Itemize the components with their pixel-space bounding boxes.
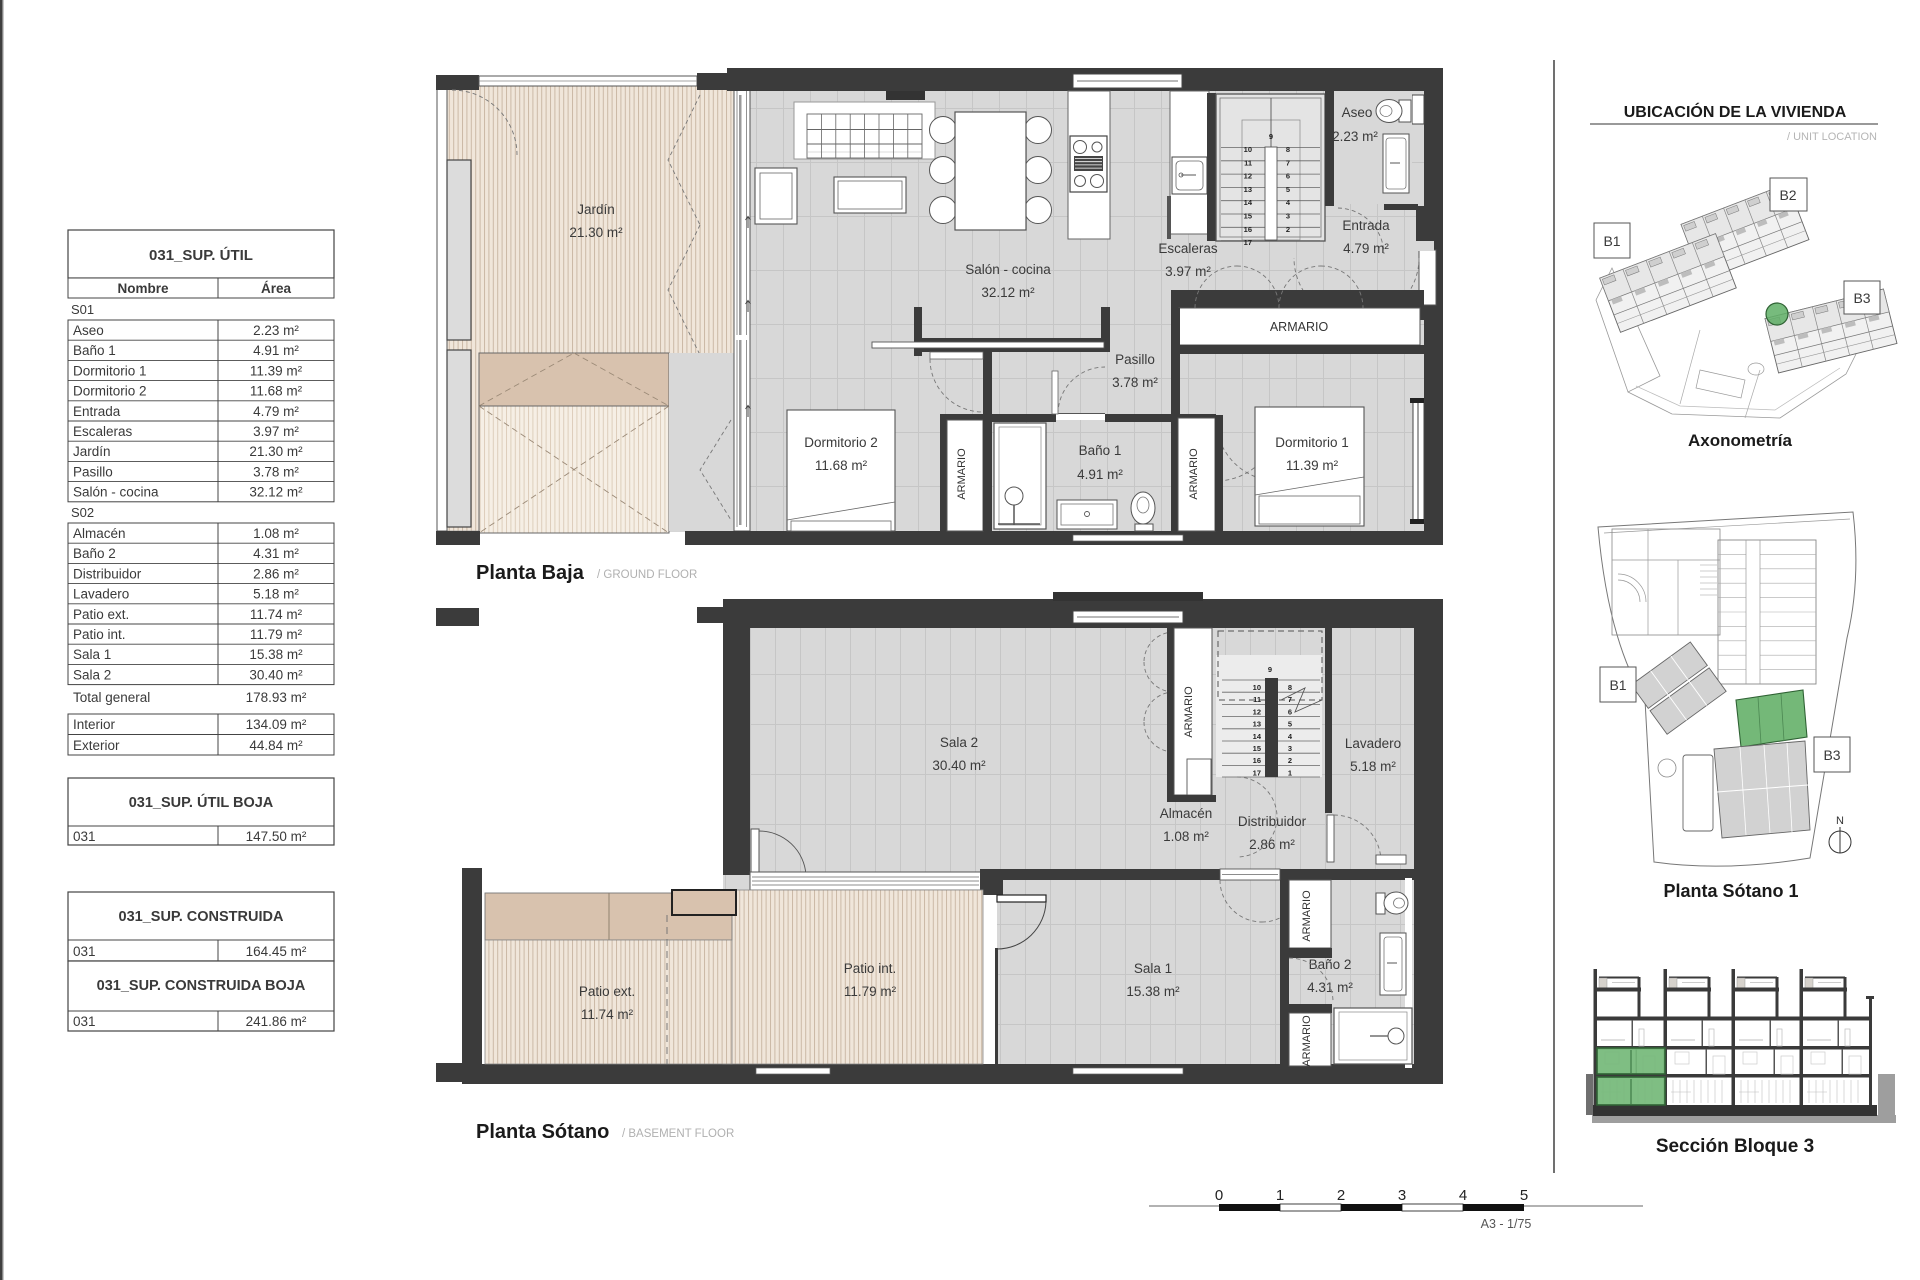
svg-text:Planta Sótano 1: Planta Sótano 1 (1663, 881, 1798, 901)
svg-text:11.74 m²: 11.74 m² (581, 1007, 634, 1022)
svg-text:Jardín: Jardín (577, 202, 615, 217)
svg-text:2.23 m²: 2.23 m² (1332, 129, 1378, 144)
svg-text:031_SUP. ÚTIL: 031_SUP. ÚTIL (149, 246, 253, 264)
svg-text:Escaleras: Escaleras (1158, 241, 1218, 256)
svg-text:5.18 m²: 5.18 m² (253, 587, 299, 602)
svg-text:17: 17 (1253, 768, 1261, 777)
svg-text:8: 8 (1288, 683, 1292, 692)
svg-text:3.97 m²: 3.97 m² (253, 424, 299, 439)
svg-text:11.74 m²: 11.74 m² (250, 607, 303, 622)
svg-text:2.23 m²: 2.23 m² (253, 323, 299, 338)
svg-text:4.79 m²: 4.79 m² (253, 404, 299, 419)
svg-text:ARMARIO: ARMARIO (1188, 448, 1200, 500)
svg-text:Lavadero: Lavadero (1345, 736, 1401, 751)
svg-text:3.97 m²: 3.97 m² (1165, 264, 1211, 279)
svg-text:134.09 m²: 134.09 m² (246, 717, 307, 732)
svg-text:S01: S01 (71, 302, 94, 317)
svg-text:Exterior: Exterior (73, 738, 120, 753)
svg-text:7: 7 (1288, 695, 1292, 704)
svg-text:Jardín: Jardín (73, 444, 111, 459)
svg-text:Nombre: Nombre (117, 281, 168, 296)
svg-text:Dormitorio 1: Dormitorio 1 (73, 363, 147, 378)
svg-text:15: 15 (1253, 744, 1261, 753)
svg-text:Axonometría: Axonometría (1688, 431, 1792, 450)
svg-text:Entrada: Entrada (1342, 218, 1390, 233)
svg-text:12: 12 (1253, 707, 1261, 716)
svg-text:Sección Bloque 3: Sección Bloque 3 (1656, 1136, 1814, 1157)
svg-text:Planta Baja: Planta Baja (476, 562, 585, 584)
svg-text:Almacén: Almacén (73, 526, 126, 541)
svg-text:Aseo: Aseo (1342, 105, 1373, 120)
svg-text:Sala 1: Sala 1 (1134, 961, 1172, 976)
svg-text:Patio int.: Patio int. (73, 627, 126, 642)
svg-text:147.50 m²: 147.50 m² (246, 829, 307, 844)
svg-text:Distribuidor: Distribuidor (73, 566, 142, 581)
svg-text:15: 15 (1244, 212, 1252, 221)
svg-text:10: 10 (1253, 683, 1261, 692)
svg-text:/ BASEMENT FLOOR: / BASEMENT FLOOR (622, 1128, 734, 1140)
svg-text:14: 14 (1253, 732, 1262, 741)
svg-text:ARMARIO: ARMARIO (1270, 320, 1329, 334)
svg-text:Planta Sótano: Planta Sótano (476, 1121, 609, 1143)
svg-text:1.08 m²: 1.08 m² (1163, 829, 1209, 844)
svg-text:13: 13 (1244, 185, 1252, 194)
svg-text:5: 5 (1288, 720, 1292, 729)
svg-text:031_SUP. ÚTIL BOJA: 031_SUP. ÚTIL BOJA (129, 793, 274, 811)
svg-text:S02: S02 (71, 505, 94, 520)
svg-text:10: 10 (1244, 145, 1252, 154)
svg-text:5: 5 (1286, 185, 1290, 194)
svg-text:164.45 m²: 164.45 m² (246, 944, 307, 959)
svg-text:Lavadero: Lavadero (73, 587, 129, 602)
svg-text:UBICACIÓN DE LA VIVIENDA: UBICACIÓN DE LA VIVIENDA (1624, 102, 1847, 121)
svg-text:Patio ext.: Patio ext. (579, 984, 635, 999)
svg-text:ARMARIO: ARMARIO (1301, 1015, 1313, 1067)
svg-text:Dormitorio 2: Dormitorio 2 (73, 384, 147, 399)
svg-text:3: 3 (1286, 212, 1290, 221)
svg-text:2.86 m²: 2.86 m² (253, 566, 299, 581)
svg-text:ARMARIO: ARMARIO (1301, 890, 1313, 942)
svg-text:17: 17 (1244, 238, 1252, 247)
svg-text:6: 6 (1286, 172, 1290, 181)
svg-text:3.78 m²: 3.78 m² (1112, 375, 1158, 390)
svg-text:B1: B1 (1609, 677, 1626, 693)
svg-text:B3: B3 (1823, 747, 1840, 763)
svg-text:2: 2 (1337, 1187, 1345, 1204)
svg-text:Baño 2: Baño 2 (73, 546, 116, 561)
svg-text:Sala 1: Sala 1 (73, 647, 111, 662)
svg-text:3.78 m²: 3.78 m² (253, 464, 299, 479)
svg-text:4.79 m²: 4.79 m² (1343, 241, 1389, 256)
svg-text:031_SUP. CONSTRUIDA: 031_SUP. CONSTRUIDA (119, 909, 284, 925)
svg-text:0: 0 (1215, 1187, 1223, 1204)
svg-text:4.31 m²: 4.31 m² (253, 546, 299, 561)
svg-text:4.31 m²: 4.31 m² (1307, 980, 1353, 995)
svg-text:4: 4 (1459, 1187, 1467, 1204)
svg-text:12: 12 (1244, 172, 1252, 181)
svg-text:ARMARIO: ARMARIO (956, 448, 968, 500)
svg-text:031: 031 (73, 1014, 96, 1029)
svg-text:Baño 2: Baño 2 (1309, 957, 1352, 972)
svg-text:Almacén: Almacén (1160, 806, 1213, 821)
svg-text:1: 1 (1288, 768, 1292, 777)
svg-text:16: 16 (1244, 225, 1252, 234)
svg-text:32.12 m²: 32.12 m² (981, 285, 1035, 300)
svg-text:Dormitorio 2: Dormitorio 2 (804, 435, 878, 450)
svg-text:32.12 m²: 32.12 m² (249, 485, 303, 500)
svg-text:Sala 2: Sala 2 (73, 667, 111, 682)
svg-text:Baño 1: Baño 1 (1079, 443, 1122, 458)
svg-text:Interior: Interior (73, 717, 116, 732)
svg-text:3: 3 (1398, 1187, 1406, 1204)
svg-text:Entrada: Entrada (73, 404, 121, 419)
svg-text:7: 7 (1286, 158, 1290, 167)
svg-text:/ UNIT LOCATION: / UNIT LOCATION (1787, 131, 1877, 143)
svg-text:Distribuidor: Distribuidor (1238, 814, 1307, 829)
svg-text:4.91 m²: 4.91 m² (1077, 467, 1123, 482)
svg-text:9: 9 (1268, 665, 1272, 674)
svg-text:031_SUP. CONSTRUIDA BOJA: 031_SUP. CONSTRUIDA BOJA (97, 978, 306, 994)
svg-text:Baño 1: Baño 1 (73, 343, 116, 358)
svg-text:11: 11 (1244, 158, 1252, 167)
svg-text:44.84 m²: 44.84 m² (249, 738, 303, 753)
svg-text:Patio int.: Patio int. (844, 961, 897, 976)
svg-text:11.39 m²: 11.39 m² (250, 363, 303, 378)
svg-text:B2: B2 (1779, 187, 1796, 203)
svg-text:5.18 m²: 5.18 m² (1350, 759, 1396, 774)
svg-text:1.08 m²: 1.08 m² (253, 526, 299, 541)
svg-text:031: 031 (73, 829, 96, 844)
svg-text:11: 11 (1253, 695, 1261, 704)
svg-text:1: 1 (1276, 1187, 1284, 1204)
svg-text:Sala 2: Sala 2 (940, 735, 978, 750)
svg-text:2: 2 (1288, 756, 1292, 765)
svg-text:Dormitorio 1: Dormitorio 1 (1275, 435, 1349, 450)
svg-text:21.30 m²: 21.30 m² (569, 225, 623, 240)
svg-text:15.38 m²: 15.38 m² (1126, 984, 1180, 999)
svg-text:Patio ext.: Patio ext. (73, 607, 129, 622)
svg-text:N: N (1836, 815, 1844, 827)
svg-text:30.40 m²: 30.40 m² (249, 667, 303, 682)
svg-text:Escaleras: Escaleras (73, 424, 133, 439)
svg-text:Pasillo: Pasillo (1115, 352, 1155, 367)
svg-text:B3: B3 (1853, 290, 1870, 306)
svg-text:13: 13 (1253, 720, 1261, 729)
svg-text:5: 5 (1520, 1187, 1528, 1204)
svg-text:Área: Área (261, 281, 292, 296)
svg-text:031: 031 (73, 944, 96, 959)
svg-text:11.68 m²: 11.68 m² (815, 458, 868, 473)
svg-text:/ GROUND FLOOR: / GROUND FLOOR (597, 569, 697, 581)
svg-text:30.40 m²: 30.40 m² (932, 758, 986, 773)
svg-text:A3 - 1/75: A3 - 1/75 (1481, 1217, 1532, 1231)
svg-text:15.38 m²: 15.38 m² (249, 647, 303, 662)
svg-text:3: 3 (1288, 744, 1292, 753)
svg-text:B1: B1 (1603, 233, 1620, 249)
svg-text:11.68 m²: 11.68 m² (250, 384, 303, 399)
svg-text:11.39 m²: 11.39 m² (1286, 458, 1339, 473)
svg-text:Total general: Total general (73, 690, 150, 705)
svg-text:11.79 m²: 11.79 m² (844, 984, 897, 999)
svg-text:2: 2 (1286, 225, 1290, 234)
svg-text:11.79 m²: 11.79 m² (250, 627, 303, 642)
svg-text:2.86 m²: 2.86 m² (1249, 837, 1295, 852)
svg-text:4.91 m²: 4.91 m² (253, 343, 299, 358)
svg-text:Aseo: Aseo (73, 323, 104, 338)
svg-text:14: 14 (1244, 198, 1253, 207)
svg-text:21.30 m²: 21.30 m² (249, 444, 303, 459)
svg-text:8: 8 (1286, 145, 1290, 154)
svg-text:16: 16 (1253, 756, 1261, 765)
svg-text:241.86 m²: 241.86 m² (246, 1014, 307, 1029)
svg-text:ARMARIO: ARMARIO (1183, 686, 1195, 738)
svg-text:Salón - cocina: Salón - cocina (965, 262, 1051, 277)
svg-text:9: 9 (1269, 132, 1273, 141)
svg-text:6: 6 (1288, 707, 1292, 716)
svg-text:Salón - cocina: Salón - cocina (73, 485, 159, 500)
svg-text:178.93 m²: 178.93 m² (246, 690, 307, 705)
svg-text:Pasillo: Pasillo (73, 464, 113, 479)
